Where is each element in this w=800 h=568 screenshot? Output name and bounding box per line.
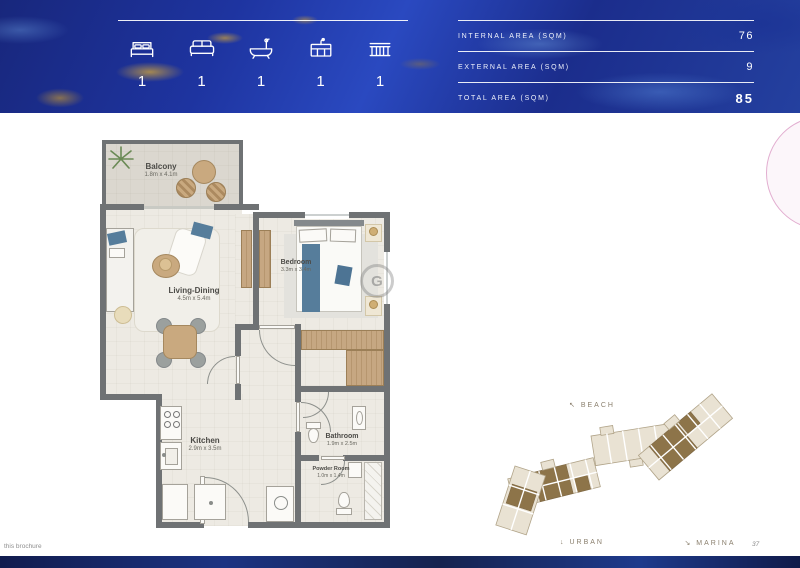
stat-balcony: 1	[356, 32, 404, 90]
disclaimer-text: this brochure	[4, 543, 42, 550]
stat-count: 1	[356, 73, 404, 90]
stat-living: 1	[178, 32, 226, 90]
wall	[214, 204, 259, 210]
bedroom-window	[305, 211, 349, 219]
stat-count: 1	[297, 73, 345, 90]
room-name: Powder Room	[299, 466, 363, 473]
nightstand-lamp	[369, 227, 378, 236]
stat-bedrooms: 1	[118, 32, 166, 90]
burner	[173, 411, 180, 418]
wall	[343, 455, 390, 461]
room-dims: 2.9m x 3.5m	[164, 446, 246, 454]
room-name: Balcony	[115, 162, 207, 172]
arrow-down-icon: ↓	[560, 539, 566, 546]
stat-count: 1	[237, 73, 285, 90]
room-name: Kitchen	[164, 436, 246, 446]
sofa-pillow	[109, 248, 125, 258]
room-label-living: Living-Dining 4.5m x 5.4m	[138, 286, 250, 304]
arrow-up-left-icon: ↖	[569, 402, 577, 409]
sink-basin	[356, 411, 363, 425]
stove	[160, 406, 182, 440]
page-number: 37	[752, 541, 759, 548]
washing-machine	[266, 486, 294, 522]
room-name: Living-Dining	[138, 286, 250, 296]
hall-door-leaf	[236, 356, 240, 384]
toilet-tank	[336, 508, 352, 515]
nightstand-lamp	[369, 300, 378, 309]
area-label: INTERNAL AREA (SQM)	[458, 33, 567, 40]
floor-plan: Balcony 1.8m x 4.1m Living-Dining 4.5m x…	[100, 140, 392, 538]
refrigerator	[162, 484, 188, 520]
direction-label-urban: ↓ URBAN	[542, 539, 622, 546]
bed-pillow	[299, 228, 328, 242]
bathroom-door-leaf	[296, 402, 300, 432]
kitchen-icon	[297, 32, 345, 64]
balcony-sliding-door	[144, 206, 214, 209]
room-dims: 4.5m x 5.4m	[138, 296, 250, 304]
area-table: INTERNAL AREA (SQM) 76 EXTERNAL AREA (SQ…	[458, 20, 754, 113]
area-value: 85	[736, 91, 754, 106]
room-label-kitchen: Kitchen 2.9m x 3.5m	[164, 436, 246, 454]
unit-stats: 1 1 1	[118, 32, 404, 90]
wall	[239, 140, 243, 208]
wall	[235, 384, 241, 400]
powder-door-leaf	[321, 456, 345, 460]
coffee-table-tray	[159, 258, 172, 271]
direction-text: URBAN	[569, 539, 604, 546]
stat-kitchen: 1	[297, 32, 345, 90]
header-banner: 1 1 1	[0, 0, 800, 113]
room-name: Bathroom	[298, 432, 386, 441]
room-label-balcony: Balcony 1.8m x 4.1m	[115, 162, 207, 180]
room-dims: 3.3m x 3.4m	[264, 267, 328, 274]
burner	[173, 421, 180, 428]
wall	[248, 522, 390, 528]
room-dims: 1.0m x 1.4m	[299, 473, 363, 480]
closet-wardrobe	[301, 330, 384, 350]
header-divider	[118, 20, 408, 21]
key-plan-buildings	[495, 390, 785, 540]
bathtub-icon	[237, 32, 285, 64]
balcony-icon	[356, 32, 404, 64]
bed-pillow	[330, 229, 356, 243]
key-plan	[495, 390, 785, 540]
kitchen-cabinet	[194, 484, 226, 520]
room-name: Bedroom	[264, 258, 328, 267]
area-label: TOTAL AREA (SQM)	[458, 95, 550, 102]
area-label: EXTERNAL AREA (SQM)	[458, 64, 570, 71]
wall	[100, 204, 144, 210]
stat-count: 1	[118, 73, 166, 90]
wall	[100, 394, 160, 400]
cabinet-knob	[209, 501, 213, 505]
dining-table	[163, 325, 197, 359]
room-dims: 1.8m x 4.1m	[115, 172, 207, 180]
bathroom-sink	[352, 406, 366, 430]
decorative-circle	[766, 116, 800, 230]
room-label-bedroom: Bedroom 3.3m x 3.4m	[264, 258, 328, 274]
utility-shaft	[364, 462, 382, 520]
stat-bathrooms: 1	[237, 32, 285, 90]
area-value: 76	[739, 30, 754, 42]
brochure-page: 1 1 1	[0, 0, 800, 568]
room-dims: 1.9m x 2.5m	[298, 441, 386, 448]
bed-runner	[302, 244, 320, 312]
wall	[301, 455, 319, 461]
wall	[235, 330, 241, 356]
washer-door	[274, 496, 288, 510]
console-unit	[241, 230, 252, 288]
bedroom-door-leaf	[259, 325, 295, 329]
direction-text: BEACH	[581, 402, 615, 409]
direction-text: MARINA	[696, 540, 735, 547]
area-value: 9	[746, 61, 754, 73]
arrow-down-right-icon: ↘	[684, 540, 692, 547]
direction-label-marina: ↘ MARINA	[668, 539, 752, 547]
bed-icon	[118, 32, 166, 64]
sofa-icon	[178, 32, 226, 64]
closet-wardrobe	[346, 350, 384, 386]
toilet-bowl	[338, 492, 350, 508]
watermark: G	[360, 264, 394, 298]
room-label-powder: Powder Room 1.0m x 1.4m	[299, 466, 363, 480]
balcony-chair	[206, 182, 226, 202]
wall	[156, 522, 204, 528]
bottom-bar	[0, 556, 800, 568]
balcony-chair	[176, 178, 196, 198]
area-row-internal: INTERNAL AREA (SQM) 76	[458, 20, 754, 51]
room-label-bathroom: Bathroom 1.9m x 2.5m	[298, 432, 386, 448]
pouf	[114, 306, 132, 324]
burner	[164, 411, 171, 418]
area-row-total: TOTAL AREA (SQM) 85	[458, 82, 754, 113]
burner	[164, 421, 171, 428]
stat-count: 1	[178, 73, 226, 90]
direction-label-beach: ↖ BEACH	[550, 401, 634, 409]
area-row-external: EXTERNAL AREA (SQM) 9	[458, 51, 754, 82]
